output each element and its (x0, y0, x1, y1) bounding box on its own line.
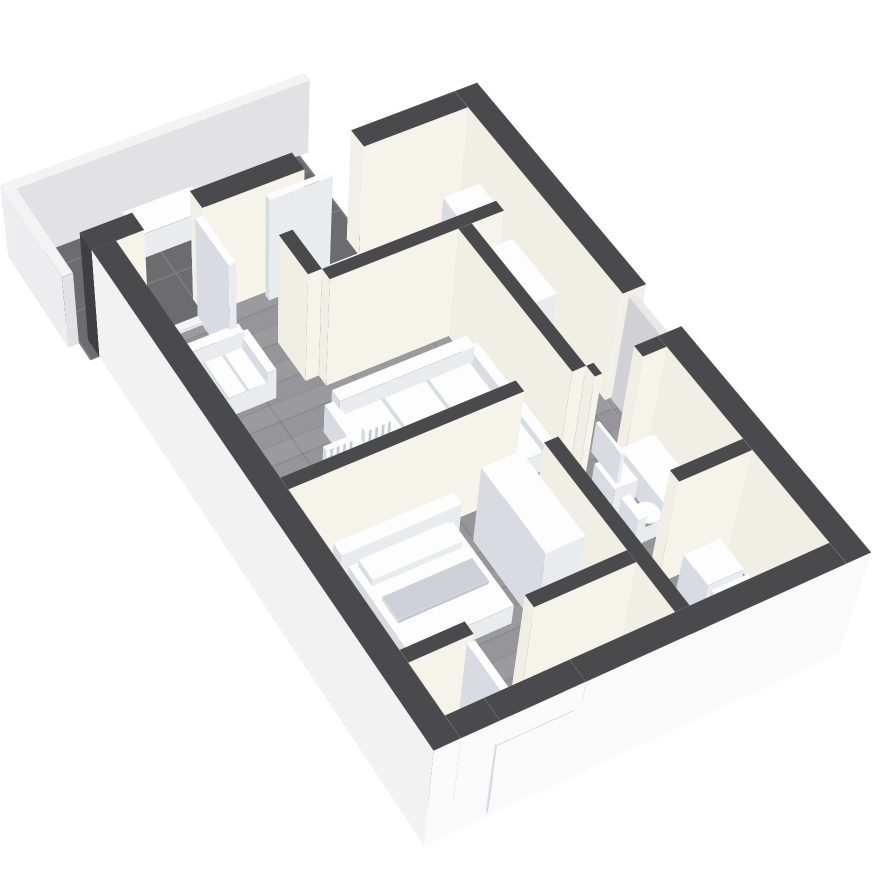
scene-3d (0, 0, 872, 874)
apartment-plan (88, 192, 839, 845)
floorplan-render (0, 0, 872, 874)
armchair-arm-right-front (267, 369, 276, 401)
